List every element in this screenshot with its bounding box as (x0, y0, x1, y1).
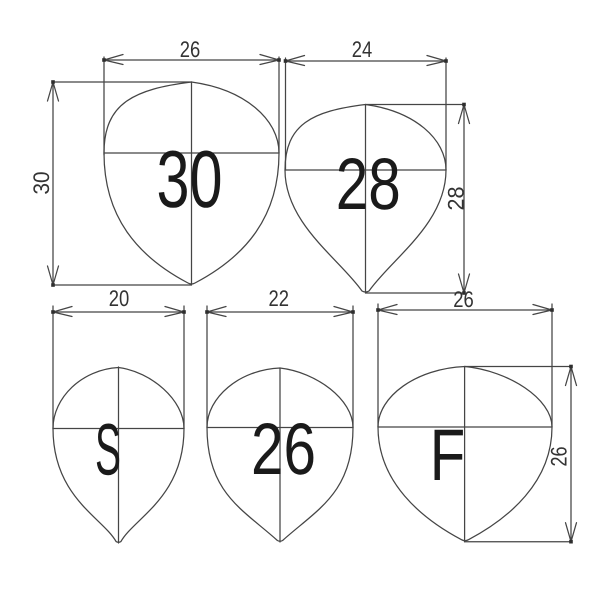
svg-text:26: 26 (453, 287, 474, 312)
svg-text:26: 26 (180, 37, 201, 62)
svg-text:30: 30 (157, 135, 223, 225)
svg-text:30: 30 (29, 172, 54, 195)
svg-text:F: F (430, 415, 466, 496)
svg-text:28: 28 (444, 187, 469, 211)
svg-text:20: 20 (109, 286, 130, 311)
svg-text:24: 24 (352, 37, 373, 62)
svg-text:S: S (95, 410, 121, 491)
svg-text:22: 22 (268, 286, 289, 311)
svg-text:26: 26 (547, 447, 572, 467)
svg-text:28: 28 (336, 144, 401, 225)
svg-text:26: 26 (251, 409, 316, 490)
